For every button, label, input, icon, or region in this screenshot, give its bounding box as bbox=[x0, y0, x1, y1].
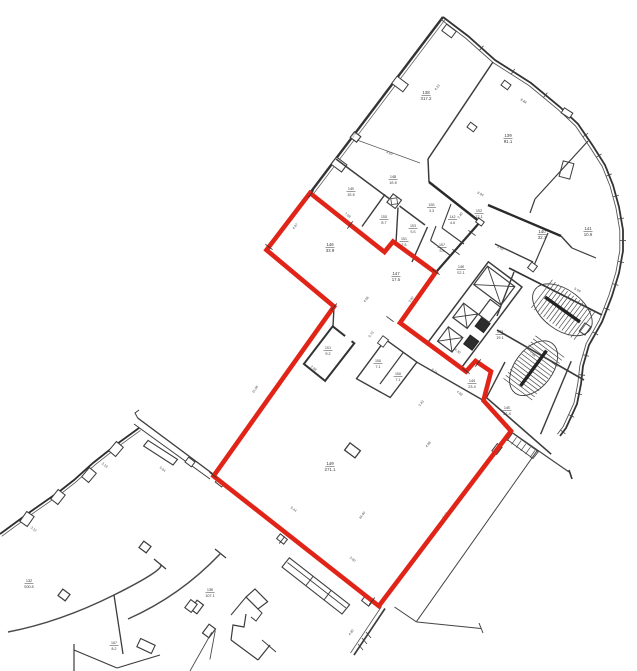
svg-text:4.6: 4.6 bbox=[450, 221, 455, 225]
svg-text:155: 155 bbox=[429, 203, 435, 207]
svg-text:136: 136 bbox=[207, 588, 213, 592]
svg-text:144: 144 bbox=[469, 379, 475, 383]
svg-text:5.5: 5.5 bbox=[440, 249, 445, 253]
svg-text:146: 146 bbox=[458, 265, 464, 269]
svg-text:16.6: 16.6 bbox=[347, 193, 354, 197]
svg-text:150: 150 bbox=[381, 215, 387, 219]
svg-text:12.1: 12.1 bbox=[475, 215, 482, 219]
svg-text:146: 146 bbox=[326, 242, 334, 247]
svg-text:33.9: 33.9 bbox=[326, 248, 335, 253]
svg-text:23.4: 23.4 bbox=[468, 385, 475, 389]
svg-text:7.1: 7.1 bbox=[396, 378, 401, 382]
svg-text:139: 139 bbox=[504, 133, 512, 138]
svg-text:3.3: 3.3 bbox=[429, 209, 434, 213]
svg-text:19.1: 19.1 bbox=[496, 336, 503, 340]
svg-text:52.1: 52.1 bbox=[457, 271, 464, 275]
svg-text:138: 138 bbox=[422, 90, 430, 95]
svg-text:271.1: 271.1 bbox=[325, 467, 337, 472]
svg-text:91.1: 91.1 bbox=[504, 139, 513, 144]
svg-text:500.6: 500.6 bbox=[24, 585, 34, 589]
svg-text:151: 151 bbox=[325, 346, 331, 350]
svg-text:145: 145 bbox=[348, 187, 354, 191]
svg-text:150: 150 bbox=[375, 359, 381, 363]
svg-text:16.6: 16.6 bbox=[389, 181, 396, 185]
svg-text:148: 148 bbox=[390, 175, 396, 179]
svg-text:149: 149 bbox=[326, 461, 334, 466]
svg-text:145: 145 bbox=[504, 406, 510, 410]
svg-text:140: 140 bbox=[538, 229, 546, 234]
svg-text:142: 142 bbox=[450, 215, 456, 219]
svg-text:157: 157 bbox=[439, 243, 445, 247]
svg-text:17.5: 17.5 bbox=[392, 277, 401, 282]
svg-text:141: 141 bbox=[584, 226, 592, 231]
svg-text:153: 153 bbox=[410, 224, 416, 228]
svg-text:151: 151 bbox=[401, 237, 407, 241]
svg-text:107: 107 bbox=[111, 641, 117, 645]
svg-text:317.2: 317.2 bbox=[421, 96, 433, 101]
svg-text:152: 152 bbox=[476, 209, 482, 213]
svg-text:107.1: 107.1 bbox=[205, 594, 215, 598]
svg-text:150: 150 bbox=[395, 372, 401, 376]
svg-text:132: 132 bbox=[26, 579, 32, 583]
svg-text:9.2: 9.2 bbox=[325, 352, 330, 356]
svg-text:8.7: 8.7 bbox=[381, 221, 386, 225]
svg-text:147: 147 bbox=[392, 271, 400, 276]
svg-text:10.6: 10.6 bbox=[584, 232, 593, 237]
svg-text:5.5: 5.5 bbox=[411, 230, 416, 234]
svg-text:32.1: 32.1 bbox=[538, 235, 547, 240]
svg-text:8.2: 8.2 bbox=[112, 647, 117, 651]
svg-text:7.1: 7.1 bbox=[376, 365, 381, 369]
svg-text:21.4: 21.4 bbox=[503, 412, 510, 416]
